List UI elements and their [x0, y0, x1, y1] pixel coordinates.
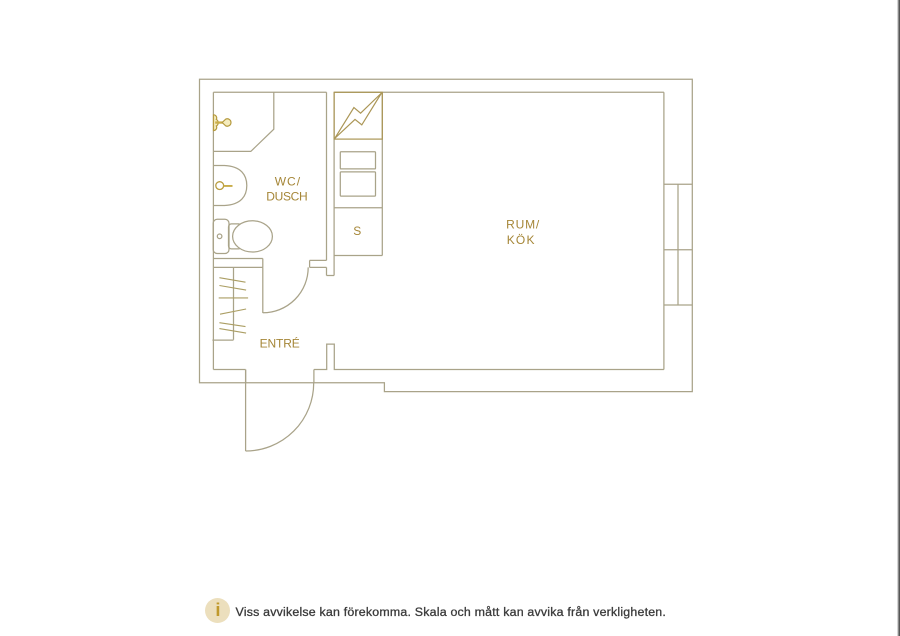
svg-text:ENTRÉ: ENTRÉ: [260, 336, 300, 351]
svg-text:WC/: WC/: [275, 175, 301, 189]
svg-text:KÖK: KÖK: [507, 233, 536, 247]
svg-text:RUM/: RUM/: [506, 217, 540, 231]
svg-text:S: S: [353, 224, 361, 238]
svg-text:DUSCH: DUSCH: [266, 190, 307, 204]
